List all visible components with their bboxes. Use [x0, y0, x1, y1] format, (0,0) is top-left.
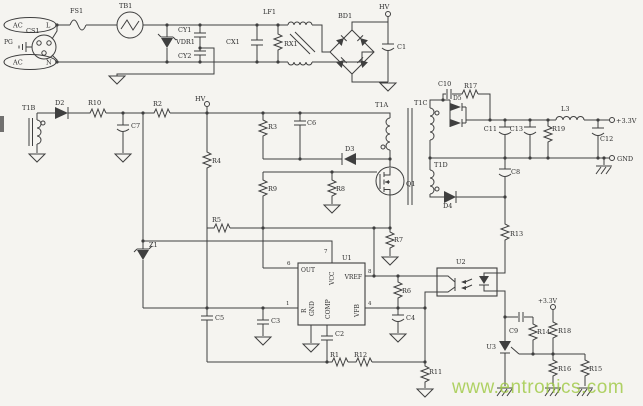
r11-resistor [421, 362, 429, 388]
ground-icon [417, 389, 433, 397]
r7-resistor [386, 230, 394, 256]
u1-pin-vref: VREF [344, 274, 362, 281]
u1-pin7-number: 7 [324, 249, 328, 255]
d3-label: D3 [345, 145, 354, 153]
vcc-rail [143, 113, 332, 263]
scan-artifact [0, 116, 4, 132]
u1-pin-r: R [301, 308, 308, 313]
hv-top-label: HV [379, 3, 390, 11]
t1b-label: T1B [22, 104, 35, 112]
earth-ground-icon [596, 166, 612, 174]
c6-capacitor [294, 113, 306, 159]
z1-label: Z1 [149, 241, 158, 249]
vout-label: +3.3V [616, 117, 637, 125]
r8-resistor [328, 172, 336, 204]
c9-capacitor [505, 312, 533, 322]
r10-label: R10 [88, 99, 101, 107]
d4-diode [444, 191, 505, 203]
fs1-fuse [70, 20, 86, 30]
ground-icon [380, 83, 396, 91]
v33-terminal [551, 305, 556, 310]
u1-pin4-number: 4 [368, 301, 372, 307]
v33-label: +3.3V [538, 298, 558, 305]
r2-resistor [152, 109, 170, 117]
c4-label: C4 [406, 314, 415, 322]
watermark: www.entronics.com [451, 377, 624, 398]
d4-label: D4 [443, 202, 452, 210]
u1-pin6-number: 6 [287, 261, 291, 267]
r13-resistor [497, 197, 509, 273]
r14-label: R14 [537, 328, 550, 336]
c11-label: C11 [484, 125, 497, 133]
earth-ground-icon [109, 76, 125, 84]
secondary-section [430, 89, 615, 203]
c1-label: C1 [397, 43, 406, 51]
u1-label: U1 [342, 254, 352, 262]
r2-label: R2 [153, 100, 162, 108]
c8-capacitor [499, 158, 511, 197]
c7-label: C7 [131, 122, 140, 130]
cy2-capacitor [194, 51, 206, 62]
ac-l-label: AC [12, 22, 23, 30]
u1-pin-vcc: VCC [329, 271, 336, 286]
c1-capacitor [382, 44, 394, 51]
opto-led-wires [479, 273, 497, 291]
r18-resistor [549, 310, 557, 355]
labels: AC L AC N CS1 PG FS1 TB1 VDR1 CY1 CY2 CX… [4, 2, 637, 376]
r9-resistor [259, 172, 267, 268]
c6-label: C6 [307, 119, 316, 127]
opto-led-icon [479, 276, 489, 284]
l-label: L [46, 22, 51, 30]
r9-label: R9 [268, 185, 277, 193]
r13-label: R13 [510, 230, 523, 238]
t1d-label: T1D [434, 161, 448, 169]
l3-label: L3 [561, 105, 569, 113]
hv-terminal [386, 12, 391, 17]
opto-emitter-wire [425, 292, 437, 362]
c13-capacitor [524, 120, 536, 158]
aux-rail [37, 113, 390, 118]
d2-label: D2 [55, 99, 64, 107]
r12-label: R12 [354, 351, 367, 359]
r5-label: R5 [212, 216, 221, 224]
r7-label: R7 [394, 236, 403, 244]
c3-capacitor [257, 308, 269, 336]
u1-pin-comp: COMP [325, 299, 332, 319]
u2-label: U2 [456, 258, 466, 266]
r19-resistor [544, 120, 552, 158]
r16-label: R16 [558, 365, 571, 373]
t1b-winding [29, 113, 45, 153]
c2-label: C2 [335, 330, 344, 338]
u1-pin-out: OUT [301, 267, 315, 274]
gnd-out-label: GND [617, 155, 633, 163]
r6-resistor [394, 276, 402, 308]
vdr1-varistor [158, 25, 176, 62]
r17-label: R17 [464, 82, 477, 90]
c10-label: C10 [438, 80, 451, 88]
d3-diode [342, 153, 356, 165]
r18-label: R18 [558, 327, 571, 335]
bd1-label: BD1 [338, 12, 352, 20]
pg-label: PG [4, 39, 13, 46]
schematic-page: AC L AC N CS1 PG FS1 TB1 VDR1 CY1 CY2 CX… [0, 0, 643, 406]
u2-optocoupler [437, 268, 497, 296]
c12-label: C12 [600, 135, 613, 143]
lf1-label: LF1 [263, 8, 276, 16]
ground-icon [303, 344, 319, 352]
ground-icon [255, 337, 271, 345]
gnd-terminal [610, 156, 615, 161]
r3-label: R3 [268, 123, 277, 131]
r12-resistor [354, 358, 372, 366]
tb1-label: TB1 [119, 2, 132, 10]
l3-inductor [556, 117, 584, 121]
u1-pin8-number: 8 [368, 269, 372, 275]
u1-controller-section [201, 263, 437, 397]
fs1-label: FS1 [70, 7, 83, 15]
c7-capacitor [117, 113, 129, 153]
c9-label: C9 [509, 327, 518, 335]
c5-label: C5 [215, 314, 224, 322]
t1d-winding [430, 170, 444, 197]
cs1-label: CS1 [26, 27, 40, 35]
c3-label: C3 [271, 317, 280, 325]
r3-resistor [259, 113, 267, 159]
ground-icon [115, 154, 131, 162]
q1-label: Q1 [406, 180, 415, 188]
r6-label: R6 [402, 287, 411, 295]
z1-zener [134, 241, 152, 308]
q1-mosfet [376, 167, 404, 195]
d2-diode [55, 107, 68, 119]
r15-label: R15 [589, 365, 602, 373]
u1-pin1-number: 1 [286, 301, 290, 307]
t1c-label: T1C [414, 99, 427, 107]
hv-mid-label: HV [195, 95, 206, 103]
u1-pin-gnd: GND [309, 301, 316, 316]
ground-icon [324, 205, 340, 213]
rx1-resistor [274, 25, 282, 62]
r5-resistor [212, 224, 230, 232]
d5-dual-diode [450, 100, 466, 127]
r19-label: R19 [552, 125, 565, 133]
u1-pin-vfb: VFB [354, 304, 361, 318]
ground-icon [29, 154, 45, 162]
c8-label: C8 [511, 168, 520, 176]
cy2-label: CY2 [178, 52, 191, 60]
r11-label: R11 [429, 368, 442, 376]
opto-transistor-icon [437, 276, 455, 292]
c4-capacitor [392, 308, 404, 333]
cx1-label: CX1 [226, 38, 240, 46]
r4-label: R4 [212, 157, 221, 165]
vdr1-label: VDR1 [175, 38, 195, 46]
neutral-rail [56, 52, 374, 62]
r1-resistor [330, 358, 348, 366]
pg-ground-icon [19, 42, 26, 52]
r17-resistor [460, 90, 478, 98]
cx1-capacitor [251, 25, 263, 62]
u3-label: U3 [486, 343, 496, 351]
transformer-core [408, 108, 412, 205]
r4-resistor [203, 150, 211, 170]
ground-icon [382, 257, 398, 265]
light-arrows-icon [465, 279, 472, 288]
c5-capacitor [201, 308, 213, 362]
vout-terminal [610, 118, 615, 123]
t1a-label: T1A [375, 101, 388, 109]
t1c-winding [430, 100, 450, 170]
d5-label: D5 [453, 95, 462, 102]
r10-resistor [88, 109, 106, 117]
dc-bus-wires [352, 17, 388, 83]
ac-n-label: AC [12, 59, 23, 67]
ground-icon [390, 334, 406, 342]
r8-label: R8 [336, 185, 345, 193]
r14-resistor [529, 317, 537, 354]
r1-label: R1 [330, 351, 339, 359]
power-supply-schematic: AC L AC N CS1 PG FS1 TB1 VDR1 CY1 CY2 CX… [0, 0, 643, 406]
c13-label: C13 [510, 125, 523, 133]
n-label: N [46, 59, 52, 67]
cy1-label: CY1 [178, 26, 191, 34]
rx1-label: RX1 [284, 40, 298, 48]
